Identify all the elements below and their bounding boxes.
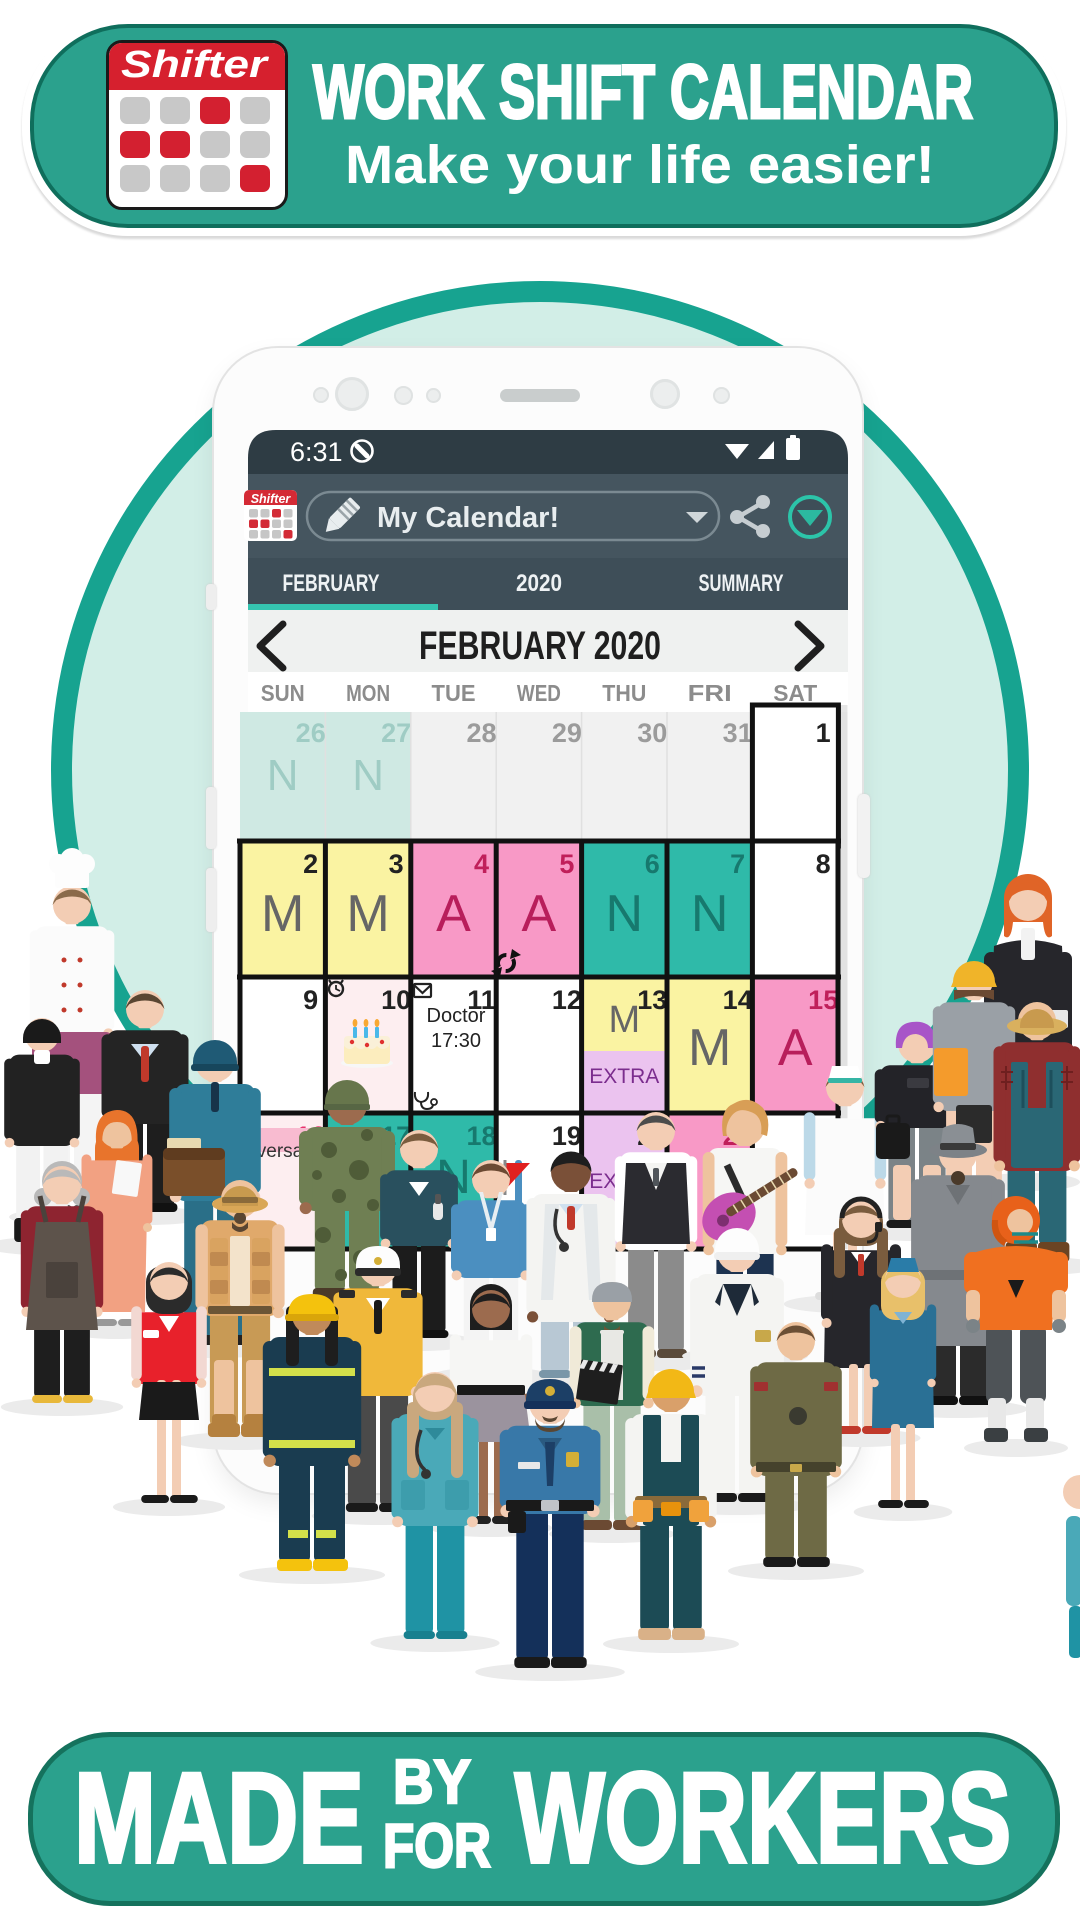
svg-text:FOR: FOR [383, 1812, 491, 1881]
svg-text:MADE: MADE [74, 1747, 364, 1890]
svg-text:WORKERS: WORKERS [515, 1747, 1011, 1890]
svg-text:BY: BY [393, 1748, 471, 1817]
